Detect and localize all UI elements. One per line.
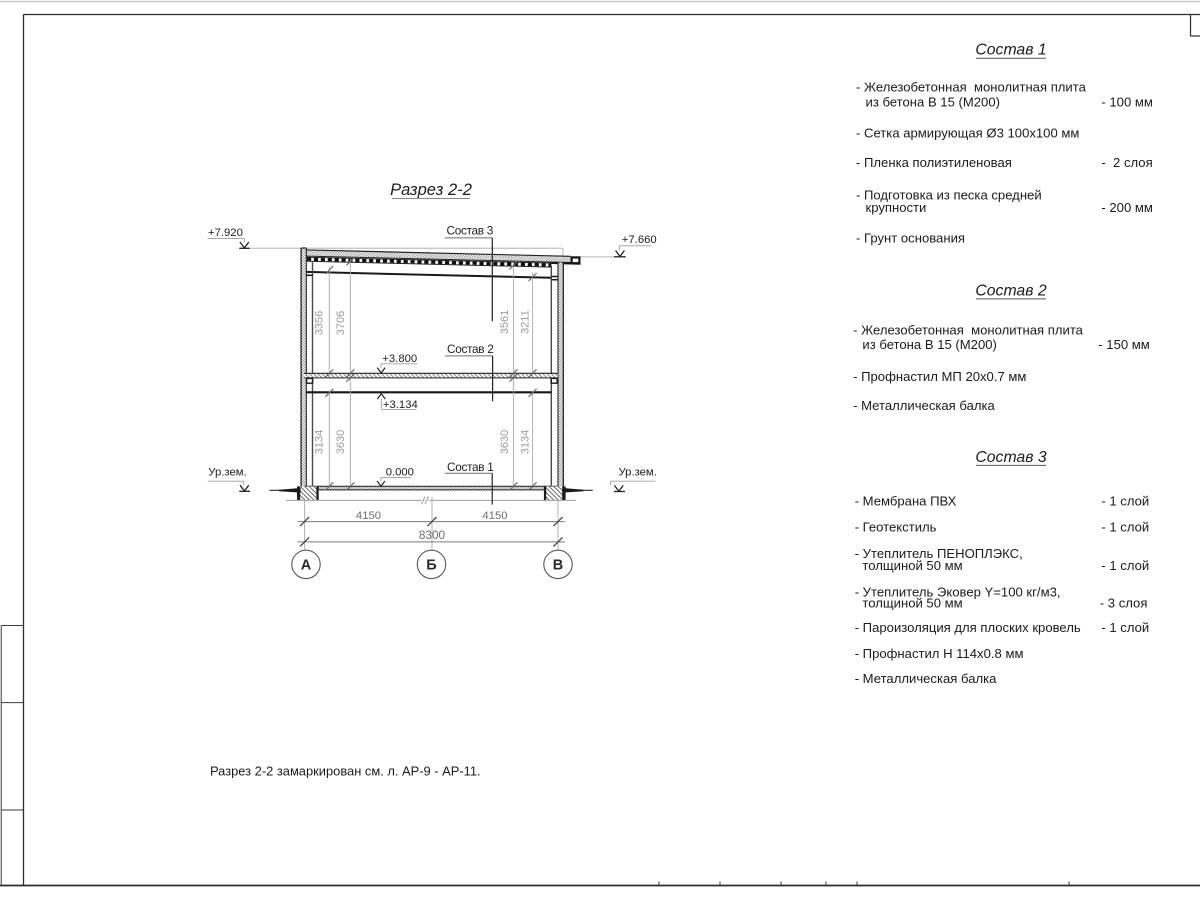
svg-text:3211: 3211 (520, 310, 532, 334)
svg-text:3134: 3134 (314, 430, 326, 454)
svg-text:+7.660: +7.660 (622, 234, 657, 246)
svg-text:3356: 3356 (314, 311, 326, 335)
svg-text:- 150 мм: - 150 мм (1098, 337, 1150, 352)
svg-text:- Пленка полиэтиленовая: - Пленка полиэтиленовая (856, 155, 1012, 170)
svg-text:- Мембрана ПВХ: - Мембрана ПВХ (855, 493, 957, 508)
svg-text:- Геотекстиль: - Геотекстиль (855, 520, 937, 535)
svg-text:3706: 3706 (335, 311, 347, 335)
svg-text:3561: 3561 (499, 310, 511, 334)
svg-text:толщиной 50 мм: толщиной 50 мм (862, 596, 962, 611)
svg-text:- 1 слой: - 1 слой (1101, 493, 1149, 508)
svg-text:Состав 3: Состав 3 (447, 224, 494, 238)
svg-text:из бетона В 15 (М200): из бетона В 15 (М200) (866, 94, 1001, 109)
svg-text:0.000: 0.000 (386, 466, 414, 478)
svg-text:В: В (553, 558, 563, 574)
svg-text:- 200 мм: - 200 мм (1101, 200, 1153, 215)
svg-text:А: А (301, 558, 312, 574)
svg-text:Состав 1: Состав 1 (447, 460, 494, 474)
svg-text:3630: 3630 (499, 430, 511, 454)
svg-text:из бетона В 15 (М200): из бетона В 15 (М200) (862, 337, 997, 352)
svg-text:Б: Б (426, 558, 436, 574)
svg-text:+7.920: +7.920 (208, 227, 243, 239)
svg-text:Состав 2: Состав 2 (975, 282, 1046, 299)
svg-text:+3.134: +3.134 (383, 399, 418, 411)
svg-text:- Металлическая балка: - Металлическая балка (853, 398, 995, 413)
svg-text:- 1 слой: - 1 слой (1101, 620, 1149, 635)
svg-text:+3.800: +3.800 (382, 353, 417, 365)
svg-text:4150: 4150 (482, 510, 507, 522)
svg-text:толщиной 50 мм: толщиной 50 мм (862, 558, 962, 573)
svg-text:- Металлическая балка: - Металлическая балка (855, 671, 997, 686)
svg-text:- Грунт основания: - Грунт основания (856, 231, 965, 246)
svg-text:- Профнастил Н 114х0.8 мм: - Профнастил Н 114х0.8 мм (855, 646, 1024, 661)
svg-text:Разрез 2-2: Разрез 2-2 (390, 181, 472, 199)
svg-text:Ур.зем.: Ур.зем. (208, 467, 246, 479)
svg-text:- 1 слой: - 1 слой (1101, 558, 1149, 573)
svg-text:3630: 3630 (335, 430, 347, 454)
svg-text:3134: 3134 (520, 430, 532, 454)
svg-text:Ур.зем.: Ур.зем. (619, 467, 657, 479)
svg-text:- Сетка армирующая Ø3 100х100: - Сетка армирующая Ø3 100х100 мм (856, 126, 1079, 141)
svg-text:Разрез 2-2 замаркирован см. л.: Разрез 2-2 замаркирован см. л. АР-9 - АР… (210, 764, 481, 779)
svg-text:Состав 2: Состав 2 (447, 342, 494, 356)
svg-text:4150: 4150 (356, 510, 381, 522)
svg-text:Состав 3: Состав 3 (975, 449, 1046, 466)
svg-text:- 1 слой: - 1 слой (1101, 520, 1149, 535)
svg-text:8300: 8300 (419, 528, 446, 542)
svg-text:- 100 мм: - 100 мм (1101, 94, 1153, 109)
svg-text:- Профнастил МП 20х0.7 мм: - Профнастил МП 20х0.7 мм (853, 369, 1026, 384)
svg-text:- Железобетонная монолитная п: - Железобетонная монолитная плита (853, 323, 1084, 338)
svg-text:крупности: крупности (866, 200, 927, 215)
svg-text:- Пароизоляция для плоских кро: - Пароизоляция для плоских кровель (855, 620, 1081, 635)
svg-text:Состав 1: Состав 1 (975, 42, 1046, 59)
svg-text:- 3 слоя: - 3 слоя (1100, 596, 1148, 611)
svg-text:- 2 слоя: - 2 слоя (1101, 155, 1152, 170)
svg-text:- Железобетонная монолитная п: - Железобетонная монолитная плита (856, 79, 1087, 94)
